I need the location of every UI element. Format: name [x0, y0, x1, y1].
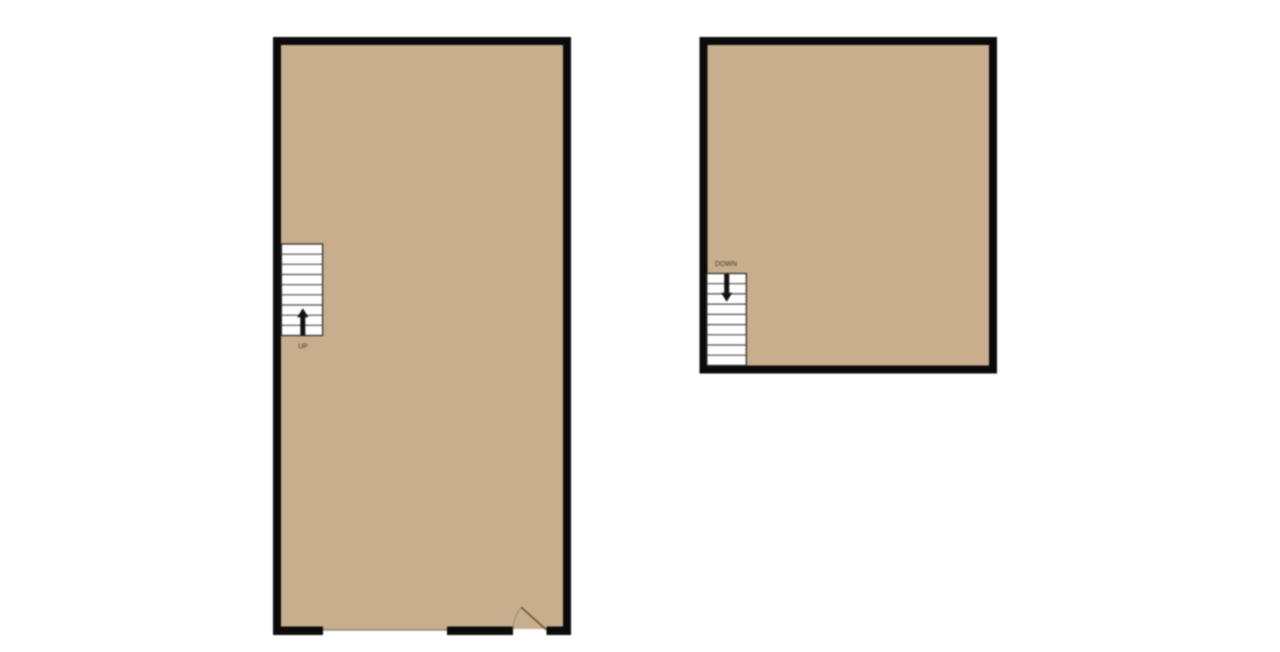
svg-text:UP: UP — [298, 344, 308, 351]
svg-text:DOWN: DOWN — [715, 261, 737, 268]
